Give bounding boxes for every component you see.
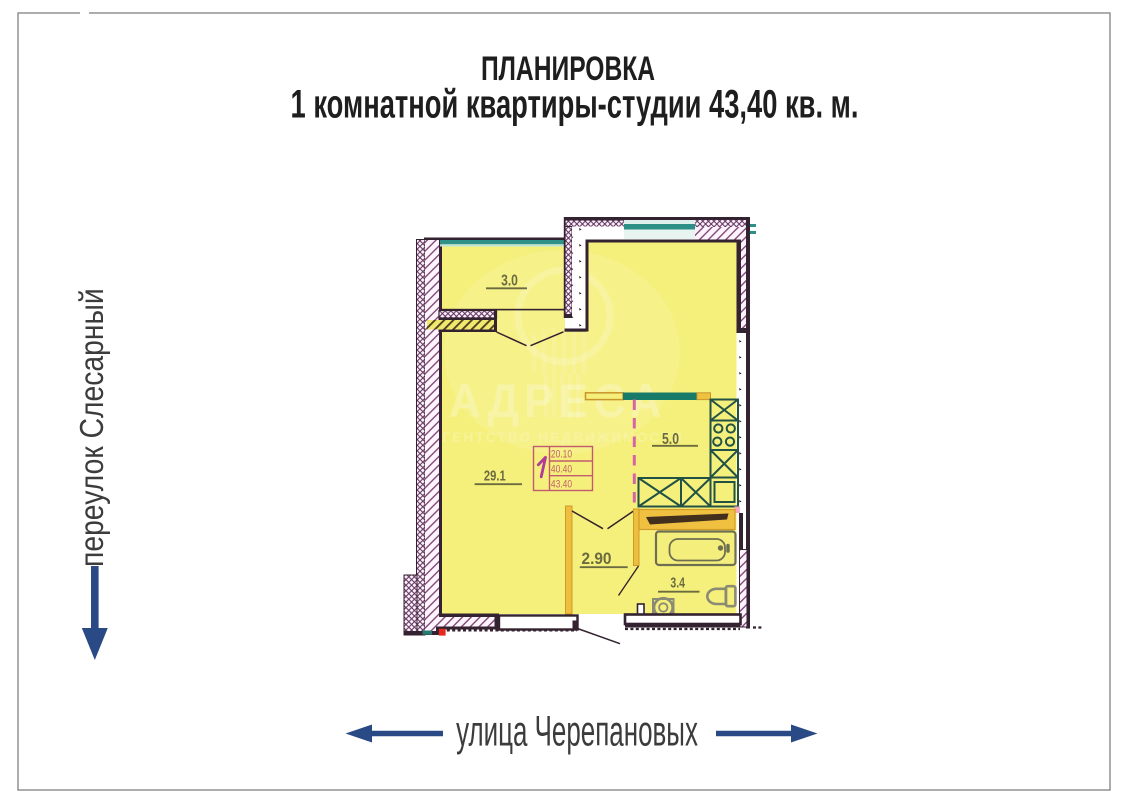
svg-text:29.1: 29.1: [484, 467, 506, 484]
svg-text:АГЕНТСТВО НЕДВИЖИМОСТИ: АГЕНТСТВО НЕДВИЖИМОСТИ: [431, 430, 684, 445]
svg-text:улица Черепановых: улица Черепановых: [456, 708, 698, 755]
svg-text:5.0: 5.0: [662, 430, 679, 448]
svg-text:43.40: 43.40: [551, 478, 573, 490]
svg-text:2.90: 2.90: [582, 551, 612, 568]
svg-text:40.40: 40.40: [551, 463, 573, 475]
svg-text:1 комнатной квартиры-студии 43: 1 комнатной квартиры-студии 43,40 кв. м.: [291, 82, 859, 126]
svg-text:3.4: 3.4: [670, 574, 685, 591]
svg-text:переулок Слесарный: переулок Слесарный: [73, 288, 111, 567]
svg-text:20.10: 20.10: [551, 449, 573, 461]
svg-text:3.0: 3.0: [501, 272, 518, 290]
